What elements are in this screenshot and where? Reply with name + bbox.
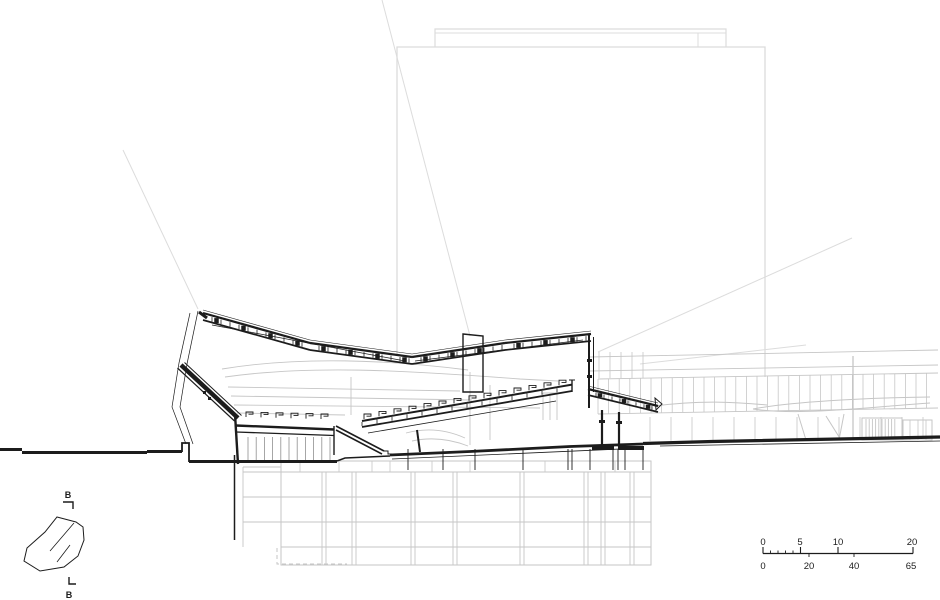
- section-marker-bottom-label: B: [66, 590, 73, 600]
- architectural-drawing-page: { "key_plan": { "section_marker_top": "B…: [0, 0, 940, 600]
- section-cut-mark-bottom: [69, 577, 76, 584]
- scale-top-5: 5: [797, 537, 802, 548]
- scale-bar: 0 5 10 20 0 20 40 65: [760, 537, 917, 572]
- key-plan-inner-lines: [50, 523, 74, 562]
- building-section-drawing: B B 0 5 10 20 0 20 40 65: [0, 0, 940, 600]
- key-plan-footprint: [24, 517, 84, 571]
- roof-shaft: [463, 334, 483, 392]
- scale-top-20: 20: [907, 537, 918, 548]
- scale-bottom-20: 20: [804, 561, 815, 572]
- section-marker-top-label: B: [65, 490, 72, 500]
- basement-grid: [235, 449, 652, 565]
- background-tower-outline: [397, 29, 765, 377]
- interior-hall-lines: [222, 352, 643, 446]
- key-plan: B B: [24, 490, 84, 600]
- scale-top-0: 0: [760, 537, 765, 548]
- seating-tiers: [235, 380, 575, 464]
- scale-bottom-65: 65: [906, 561, 917, 572]
- scale-bar-ticks: [763, 547, 913, 557]
- scale-bottom-40: 40: [849, 561, 860, 572]
- section-cut-mark-top: [63, 502, 73, 509]
- scale-top-10: 10: [833, 537, 844, 548]
- guy-lines: [123, 0, 852, 364]
- scale-bottom-0: 0: [760, 561, 765, 572]
